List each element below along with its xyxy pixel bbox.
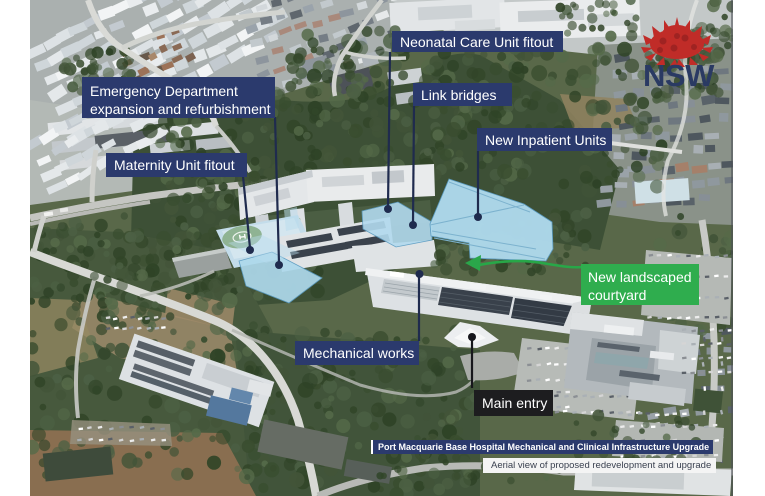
svg-text:NSW: NSW [643, 58, 715, 93]
